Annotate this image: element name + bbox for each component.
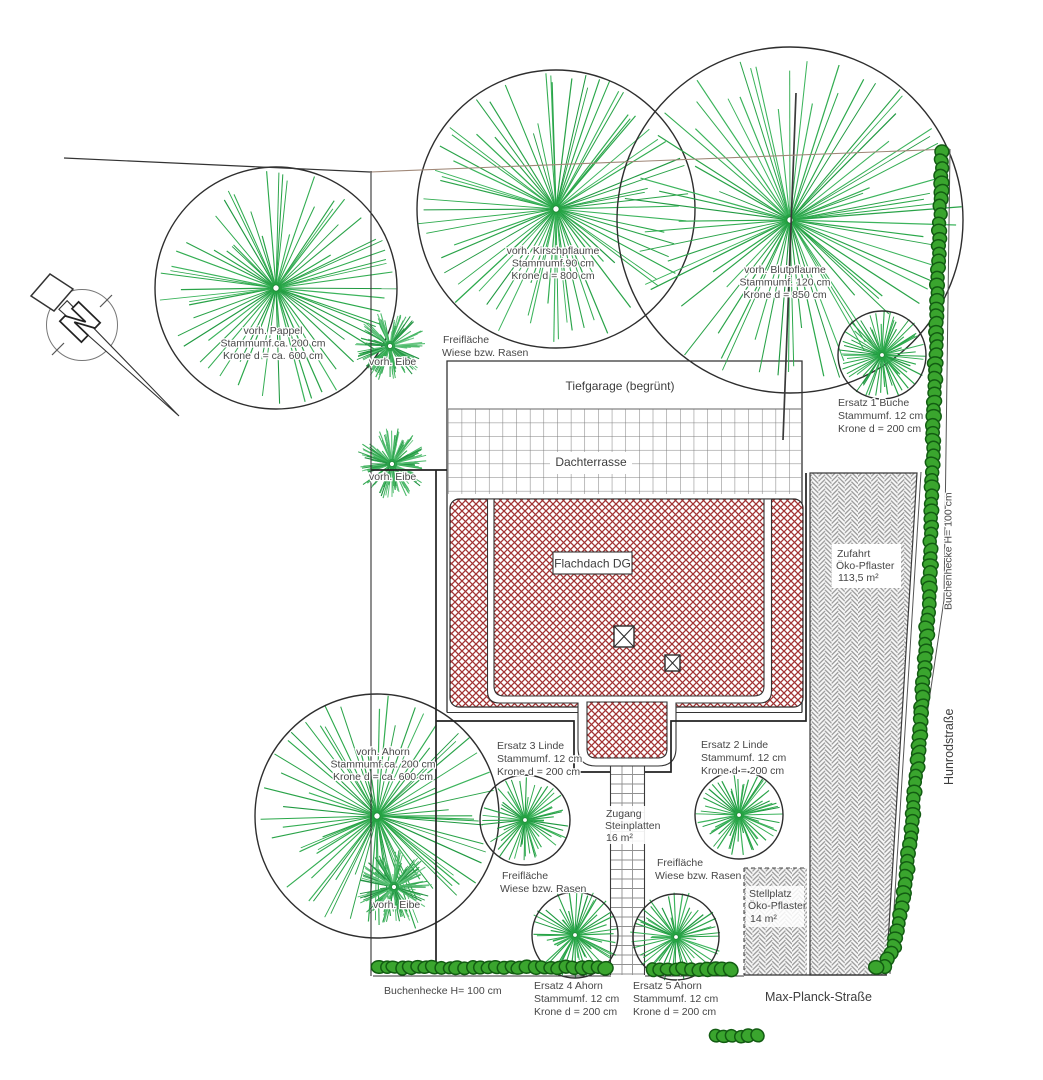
svg-text:Ersatz 4 Ahorn: Ersatz 4 Ahorn xyxy=(534,980,603,992)
svg-text:Freifläche: Freifläche xyxy=(502,870,548,882)
svg-text:Freifläche: Freifläche xyxy=(657,857,703,869)
svg-text:Hunrodstraße: Hunrodstraße xyxy=(942,709,956,785)
svg-text:Krone d = ca. 600 cm: Krone d = ca. 600 cm xyxy=(223,350,323,362)
svg-text:Krone d = ca. 600 cm: Krone d = ca. 600 cm xyxy=(333,771,433,783)
svg-text:113,5 m²: 113,5 m² xyxy=(838,572,879,584)
svg-text:Öko-Pflaster: Öko-Pflaster xyxy=(748,900,807,912)
svg-text:Zugang: Zugang xyxy=(606,808,642,820)
svg-text:Krone d = 200 cm: Krone d = 200 cm xyxy=(534,1006,617,1018)
svg-text:vorh. Ahorn: vorh. Ahorn xyxy=(356,746,410,758)
svg-text:Krone d = 850 cm: Krone d = 850 cm xyxy=(743,289,826,301)
svg-text:Flachdach DG: Flachdach DG xyxy=(554,557,631,571)
svg-text:Krone d = 800 cm: Krone d = 800 cm xyxy=(511,270,594,282)
svg-text:Freifläche: Freifläche xyxy=(443,334,489,346)
svg-text:Stammumf. 12 cm: Stammumf. 12 cm xyxy=(701,752,786,764)
svg-text:Wiese bzw. Rasen: Wiese bzw. Rasen xyxy=(442,347,529,359)
svg-text:vorh. Eibe: vorh. Eibe xyxy=(373,899,420,911)
svg-text:Stammumf. 12 cm: Stammumf. 12 cm xyxy=(534,993,619,1005)
svg-text:Ersatz 5 Ahorn: Ersatz 5 Ahorn xyxy=(633,980,702,992)
svg-text:vorh. Kirschpflaume: vorh. Kirschpflaume xyxy=(507,245,600,257)
svg-text:Krone d = 200 cm: Krone d = 200 cm xyxy=(838,423,921,435)
svg-text:Stammumf.ca. 200 cm: Stammumf.ca. 200 cm xyxy=(220,337,325,349)
svg-text:Stammumf. 120 cm: Stammumf. 120 cm xyxy=(739,276,830,288)
svg-text:Stammumf. 12 cm: Stammumf. 12 cm xyxy=(633,993,718,1005)
svg-text:Tiefgarage (begrünt): Tiefgarage (begrünt) xyxy=(566,379,675,393)
svg-text:Wiese bzw. Rasen: Wiese bzw. Rasen xyxy=(500,883,587,895)
svg-text:Öko-Pflaster: Öko-Pflaster xyxy=(836,560,895,572)
svg-text:Stammumf. 12 cm: Stammumf. 12 cm xyxy=(497,753,582,765)
svg-text:vorh. Pappel: vorh. Pappel xyxy=(244,325,303,337)
svg-text:Krone d = 200 cm: Krone d = 200 cm xyxy=(701,765,784,777)
svg-text:Krone d = 200 cm: Krone d = 200 cm xyxy=(633,1006,716,1018)
svg-text:Stammumf.90 cm: Stammumf.90 cm xyxy=(512,257,595,269)
svg-text:Buchenhecke H= 100 cm: Buchenhecke H= 100 cm xyxy=(943,492,955,610)
svg-text:vorh. Eibe: vorh. Eibe xyxy=(369,356,416,368)
svg-text:Stammumf. 12 cm: Stammumf. 12 cm xyxy=(838,410,923,422)
svg-text:Max-Planck-Straße: Max-Planck-Straße xyxy=(765,990,872,1004)
svg-text:Stammumf.ca. 200 cm: Stammumf.ca. 200 cm xyxy=(330,758,435,770)
svg-text:Ersatz 3 Linde: Ersatz 3 Linde xyxy=(497,740,564,752)
svg-text:Wiese bzw. Rasen: Wiese bzw. Rasen xyxy=(655,870,742,882)
svg-text:Buchenhecke H= 100 cm: Buchenhecke H= 100 cm xyxy=(384,985,502,997)
svg-text:Dachterrasse: Dachterrasse xyxy=(555,455,627,469)
svg-text:Ersatz 1 Buche: Ersatz 1 Buche xyxy=(838,397,909,409)
svg-text:Steinplatten: Steinplatten xyxy=(605,820,661,832)
svg-text:16 m²: 16 m² xyxy=(606,832,633,844)
svg-text:Zufahrt: Zufahrt xyxy=(837,548,870,560)
svg-text:Ersatz 2 Linde: Ersatz 2 Linde xyxy=(701,739,768,751)
svg-text:vorh. Blutpflaume: vorh. Blutpflaume xyxy=(744,264,826,276)
svg-text:vorh. Eibe: vorh. Eibe xyxy=(369,471,416,483)
svg-text:14 m²: 14 m² xyxy=(750,913,777,925)
svg-text:Stellplatz: Stellplatz xyxy=(749,888,792,900)
svg-text:Krone d = 200 cm: Krone d = 200 cm xyxy=(497,766,580,778)
